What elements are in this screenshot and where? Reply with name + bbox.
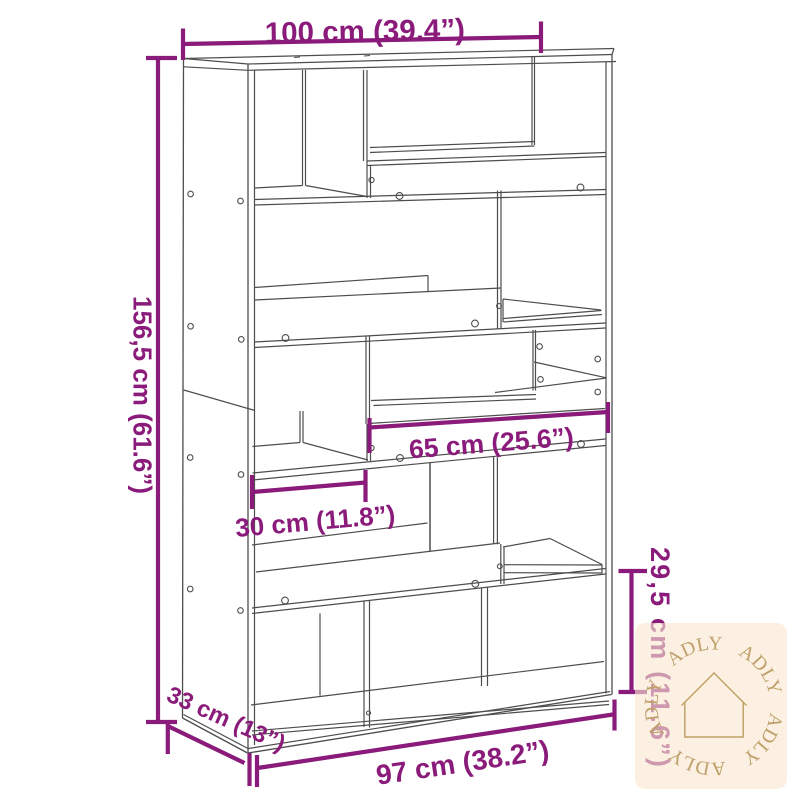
- svg-text:65 cm (25.6”): 65 cm (25.6”): [408, 422, 575, 465]
- svg-text:30 cm (11.8”): 30 cm (11.8”): [234, 499, 396, 543]
- svg-text:156,5 cm (61.6”): 156,5 cm (61.6”): [128, 296, 158, 494]
- svg-text:97 cm (38.2”): 97 cm (38.2”): [374, 734, 551, 790]
- svg-text:33 cm (13”): 33 cm (13”): [163, 681, 289, 756]
- svg-text:100 cm (39.4”): 100 cm (39.4”): [264, 13, 465, 50]
